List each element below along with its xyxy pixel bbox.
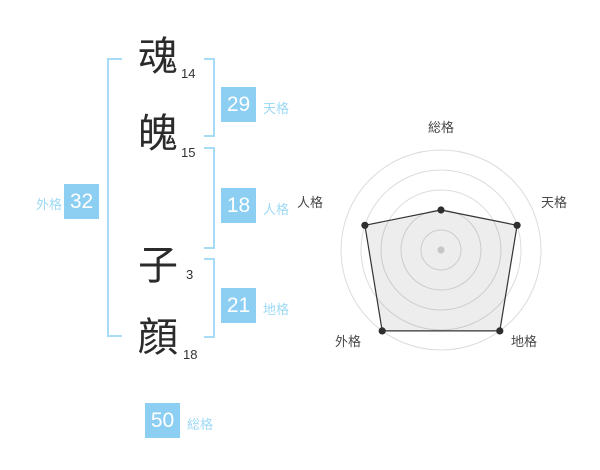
radar-plot-area bbox=[341, 150, 541, 350]
tenkaku-label: 天格 bbox=[263, 98, 289, 117]
radar-center-dot bbox=[437, 246, 444, 253]
name-character-1: 魂 bbox=[134, 36, 182, 78]
tenkaku-bracket-top-tick bbox=[204, 58, 215, 60]
gaikaku-bracket-top-tick bbox=[107, 58, 122, 60]
name-character-4: 顔 bbox=[134, 317, 182, 359]
tenkaku-bracket-bottom-tick bbox=[204, 135, 215, 137]
jinkaku-value-box: 18 bbox=[221, 188, 256, 223]
radar-data-polygon bbox=[365, 210, 517, 331]
tenkaku-bracket-line bbox=[213, 58, 215, 137]
chikaku-bracket-top-tick bbox=[204, 258, 215, 260]
gaikaku-label: 外格 bbox=[36, 194, 62, 213]
chikaku-value-box: 21 bbox=[221, 288, 256, 323]
name-character-3: 子 bbox=[134, 245, 182, 287]
radar-axis-label-jinkaku: 人格 bbox=[297, 195, 323, 210]
radar-data-point bbox=[514, 222, 521, 229]
radar-data-point bbox=[379, 327, 386, 334]
jinkaku-bracket-line bbox=[213, 147, 215, 249]
chikaku-label: 地格 bbox=[263, 299, 289, 318]
radar-axis-label-gaikaku: 外格 bbox=[335, 334, 361, 349]
gaikaku-bracket-line bbox=[107, 58, 109, 337]
gaikaku-bracket-bottom-tick bbox=[107, 335, 122, 337]
jinkaku-bracket-top-tick bbox=[204, 147, 215, 149]
radar-axis-label-chikaku: 地格 bbox=[511, 334, 537, 349]
radar-data-point bbox=[437, 206, 444, 213]
chikaku-bracket-bottom-tick bbox=[204, 336, 215, 338]
soukaku-value-box: 50 bbox=[145, 403, 180, 438]
radar-axis-label-soukaku: 総格 bbox=[428, 120, 454, 135]
stroke-count-4: 18 bbox=[183, 347, 197, 362]
stroke-count-1: 14 bbox=[181, 66, 195, 81]
tenkaku-value-box: 29 bbox=[221, 87, 256, 122]
radar-data-point bbox=[361, 222, 368, 229]
stroke-count-2: 15 bbox=[181, 145, 195, 160]
radar-data-point bbox=[496, 327, 503, 334]
seimei-handan-panel: 魂 14 魄 15 子 3 顔 18 29 天格 18 人格 21 地格 外格 … bbox=[0, 0, 600, 470]
gaikaku-value-box: 32 bbox=[64, 184, 99, 219]
radar-chart: 総格 天格 地格 外格 人格 bbox=[295, 90, 595, 380]
radar-chart-svg: 総格 天格 地格 外格 人格 bbox=[295, 90, 595, 380]
soukaku-label: 総格 bbox=[187, 414, 213, 433]
stroke-count-3: 3 bbox=[186, 267, 193, 282]
jinkaku-label: 人格 bbox=[263, 199, 289, 218]
name-character-2: 魄 bbox=[134, 113, 182, 155]
jinkaku-bracket-bottom-tick bbox=[204, 247, 215, 249]
chikaku-bracket-line bbox=[213, 258, 215, 338]
radar-axis-label-tenkaku: 天格 bbox=[541, 195, 567, 210]
